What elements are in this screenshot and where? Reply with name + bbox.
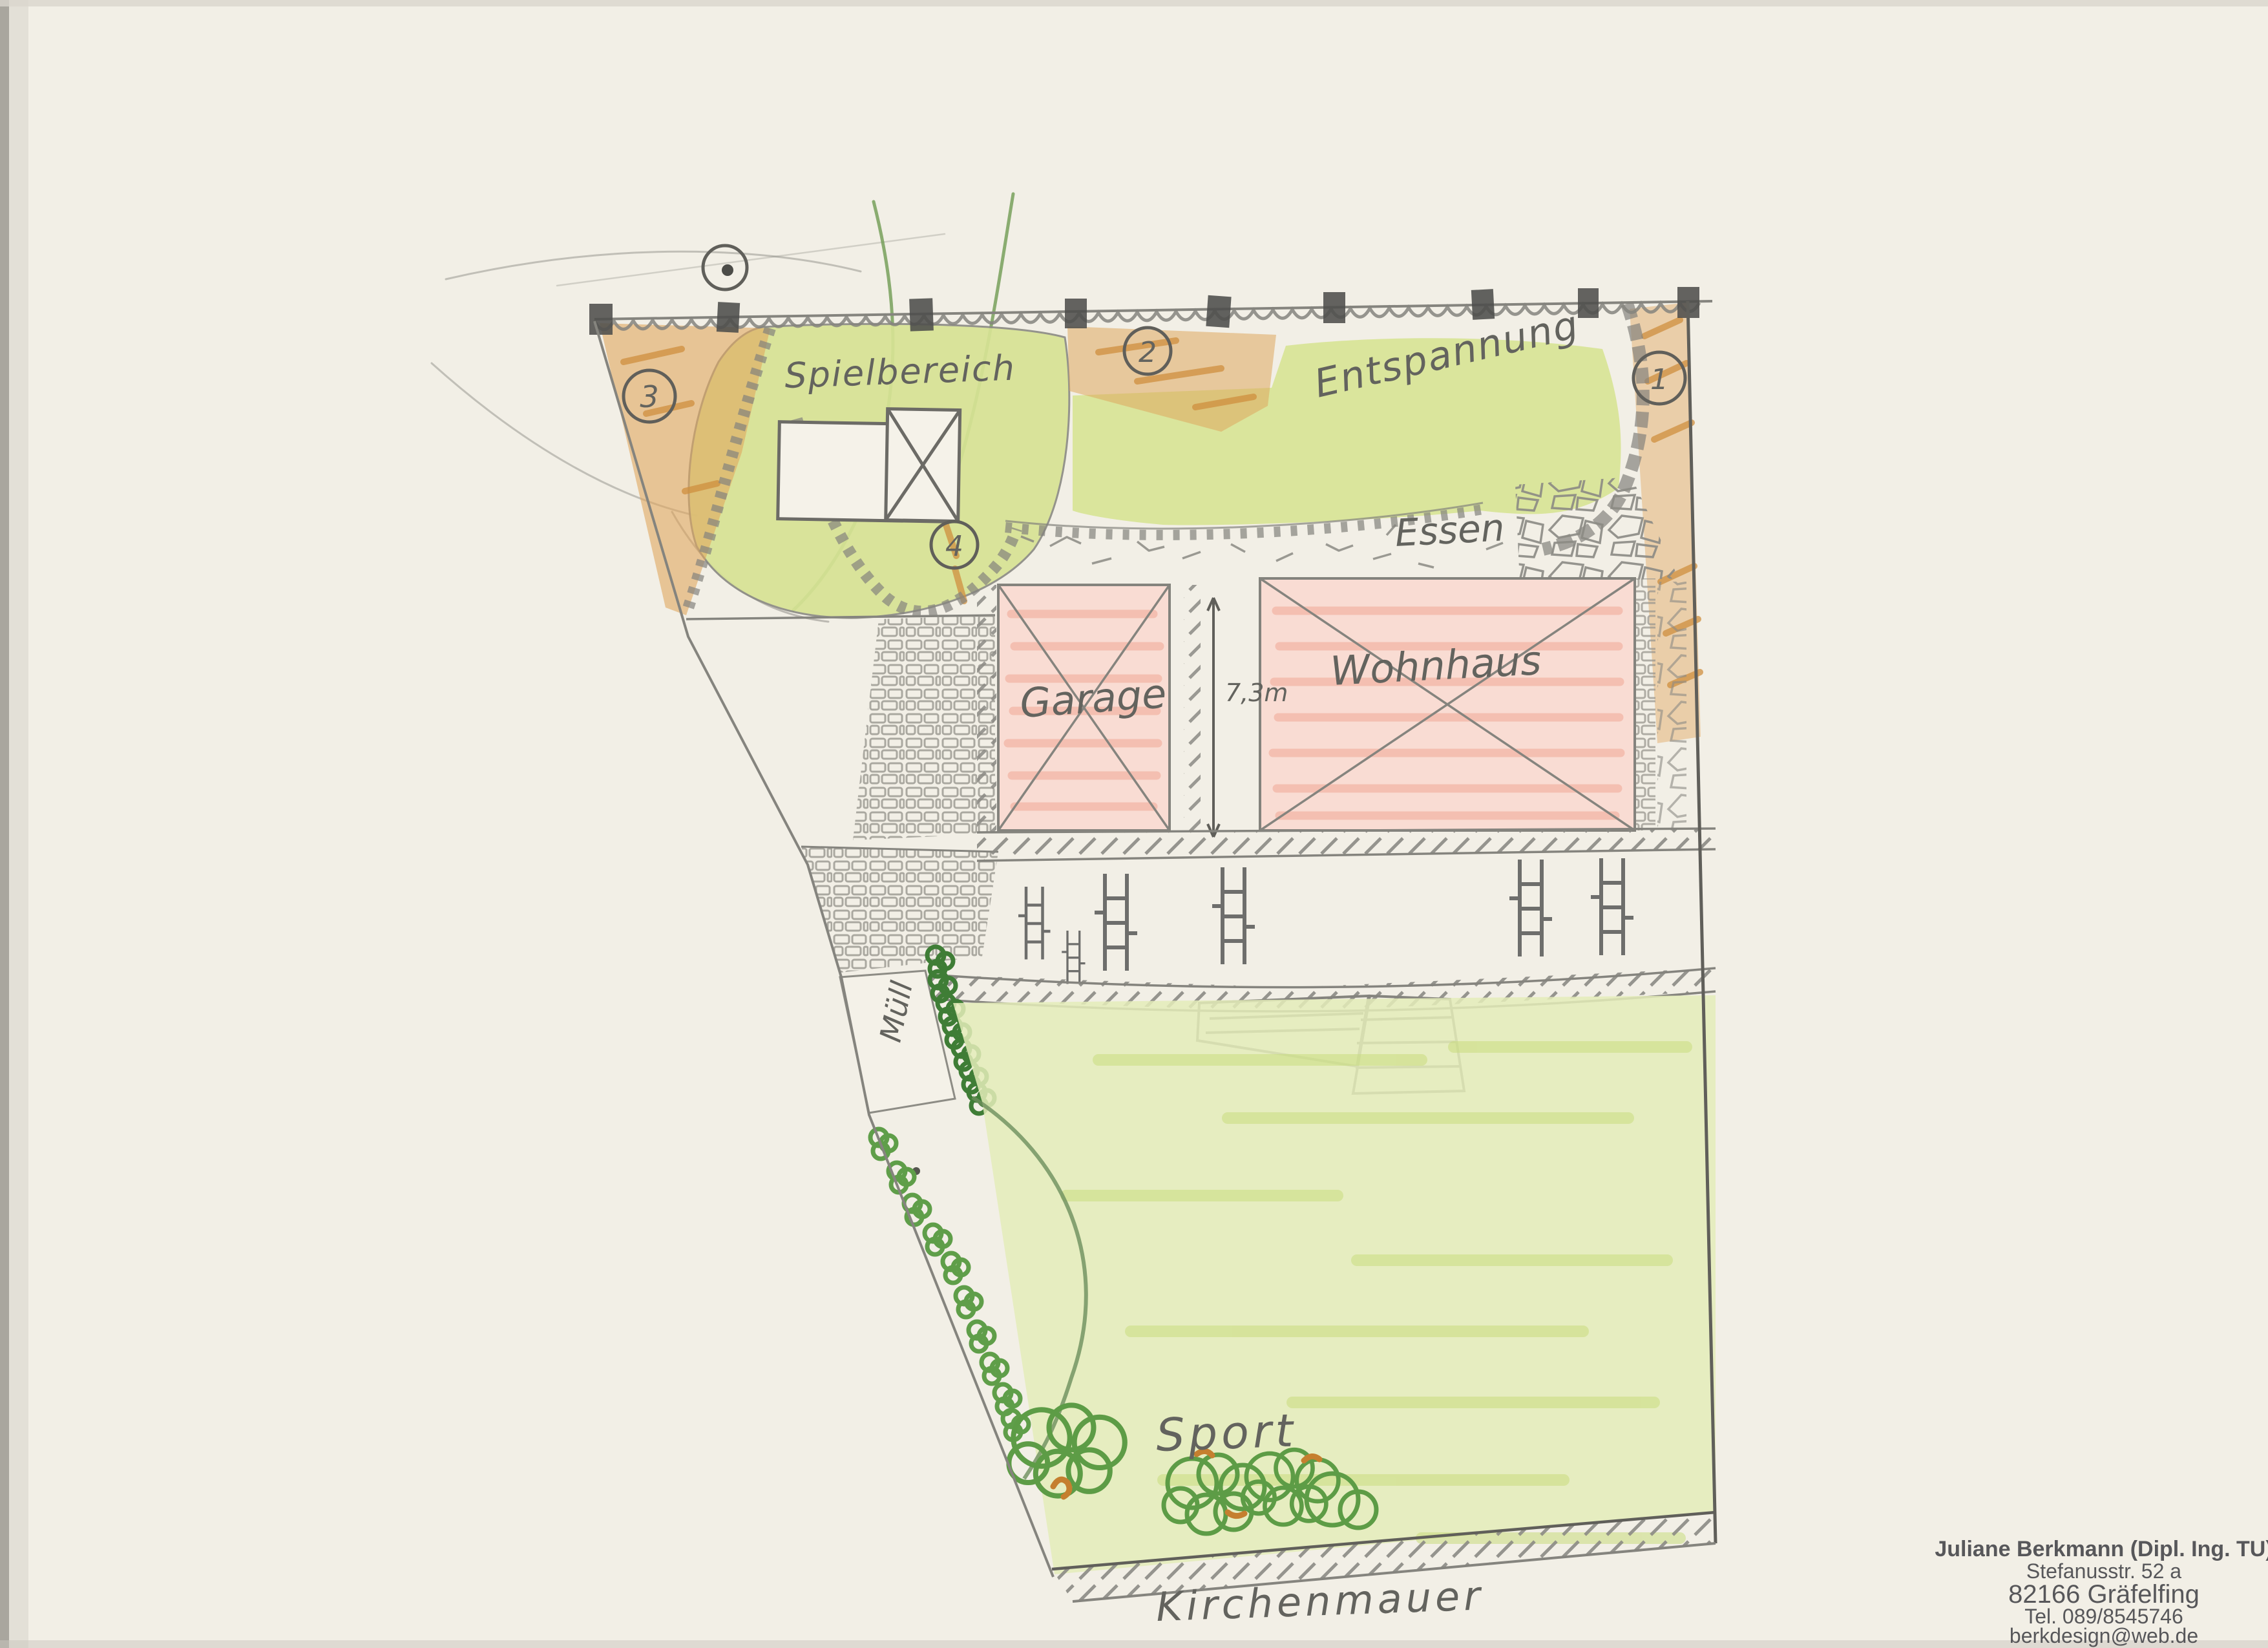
- gap-wall: [1184, 585, 1201, 830]
- stamp-name: Juliane Berkmann (Dipl. Ing. TU): [1935, 1537, 2268, 1561]
- stamp-email: berkdesign@web.de: [2010, 1624, 2198, 1647]
- sandbox: [778, 407, 960, 522]
- stamp-street: Stefanusstr. 52 a: [2026, 1559, 2181, 1583]
- wohnhaus-building: [1260, 578, 1635, 830]
- essen-label: Essen: [1394, 505, 1506, 555]
- dimension-label: 7,3m: [1225, 679, 1288, 707]
- wohnhaus-right-wall: [1636, 578, 1655, 830]
- svg-text:1: 1: [1650, 363, 1668, 396]
- svg-text:3: 3: [640, 379, 658, 414]
- sport-label: Sport: [1155, 1404, 1298, 1462]
- scanned-garden-plan: 7,3m Müll: [0, 0, 2268, 1648]
- svg-text:4: 4: [945, 530, 963, 563]
- spielbereich-label: Spielbereich: [784, 348, 1016, 396]
- garage-left-wall: [977, 585, 996, 834]
- svg-text:2: 2: [1139, 336, 1157, 369]
